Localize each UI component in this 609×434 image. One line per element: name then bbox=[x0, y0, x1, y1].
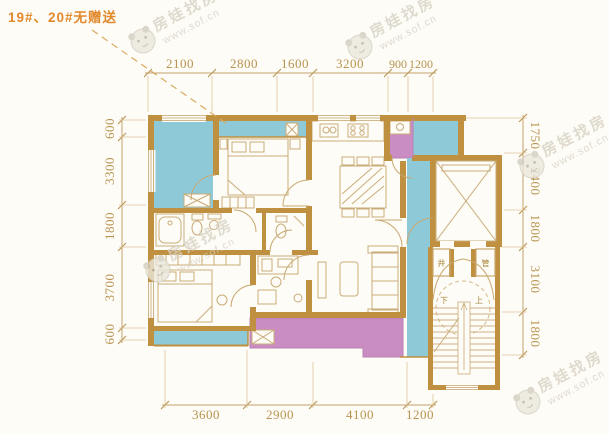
dim-label: 1200 bbox=[406, 407, 434, 422]
kitchen-counter bbox=[312, 121, 384, 141]
dim-label: 600 bbox=[102, 118, 117, 139]
dimension-top: 2100 2800 1600 3200 900 1200 bbox=[144, 56, 437, 112]
door-arc-wc2 bbox=[270, 230, 292, 252]
dim-label: 900 bbox=[389, 57, 407, 71]
wardrobe-strip bbox=[222, 197, 254, 208]
dim-label: 1200 bbox=[409, 57, 433, 71]
dim-label: 1800 bbox=[528, 320, 543, 348]
window bbox=[162, 114, 206, 122]
dim-label: 2800 bbox=[230, 56, 258, 71]
door-arc-bed2 bbox=[231, 285, 253, 307]
tv-cabinet bbox=[318, 262, 326, 298]
utility-basin-icon bbox=[390, 121, 410, 134]
dim-label: 4100 bbox=[346, 407, 374, 422]
page-title: 19#、20#无赠送 bbox=[8, 9, 117, 25]
dim-label: 3100 bbox=[528, 266, 543, 294]
watermark: 房娃找房 www.sof.cn bbox=[125, 0, 228, 61]
zone-rear-balcony bbox=[154, 331, 248, 346]
toilet-2 bbox=[276, 216, 304, 238]
dim-label: 1800 bbox=[528, 215, 543, 243]
dim-label: 1600 bbox=[281, 56, 309, 71]
dim-label: 3700 bbox=[102, 274, 117, 302]
floor-plan-svg: 井 管 下 上 bbox=[0, 0, 609, 434]
window bbox=[147, 150, 156, 192]
washer-icon bbox=[184, 194, 210, 207]
window bbox=[356, 114, 380, 122]
desk bbox=[258, 256, 302, 304]
window bbox=[446, 384, 478, 391]
elevator bbox=[436, 161, 496, 247]
leader-line bbox=[92, 30, 230, 126]
staircase: 井 管 下 上 bbox=[433, 249, 495, 374]
bed-second bbox=[158, 270, 227, 322]
stair-cut-line bbox=[434, 318, 459, 352]
dimension-left: 600 3300 1800 3700 600 bbox=[102, 116, 146, 345]
sofa bbox=[368, 246, 398, 316]
dim-label: 1800 bbox=[102, 212, 117, 240]
dim-label: 600 bbox=[102, 324, 117, 345]
zone-entry-hall bbox=[413, 118, 458, 158]
door-arc-entry bbox=[375, 220, 402, 247]
door-arc-bath bbox=[234, 210, 256, 232]
dim-label: 2900 bbox=[266, 407, 294, 422]
window bbox=[147, 282, 156, 318]
window bbox=[318, 114, 350, 122]
watermark: 房娃找房 www.sof.cn bbox=[510, 347, 609, 422]
stair-label-down: 下 bbox=[440, 296, 448, 305]
stair-label-up: 上 bbox=[475, 296, 483, 305]
stair-label-pipe: 管 bbox=[482, 258, 490, 268]
stair-label-shaft: 井 bbox=[438, 258, 446, 268]
dim-label: 2100 bbox=[166, 56, 194, 71]
dining-set bbox=[340, 157, 386, 217]
dim-label: 3600 bbox=[192, 407, 220, 422]
dim-label: 3300 bbox=[102, 157, 117, 185]
dimension-bottom: 3600 2900 4100 1200 bbox=[161, 350, 437, 422]
bed-master bbox=[220, 139, 300, 195]
coffee-table bbox=[340, 262, 358, 296]
ac-unit-terrace-icon bbox=[252, 330, 274, 344]
floor-plan: 井 管 下 上 bbox=[0, 0, 609, 434]
